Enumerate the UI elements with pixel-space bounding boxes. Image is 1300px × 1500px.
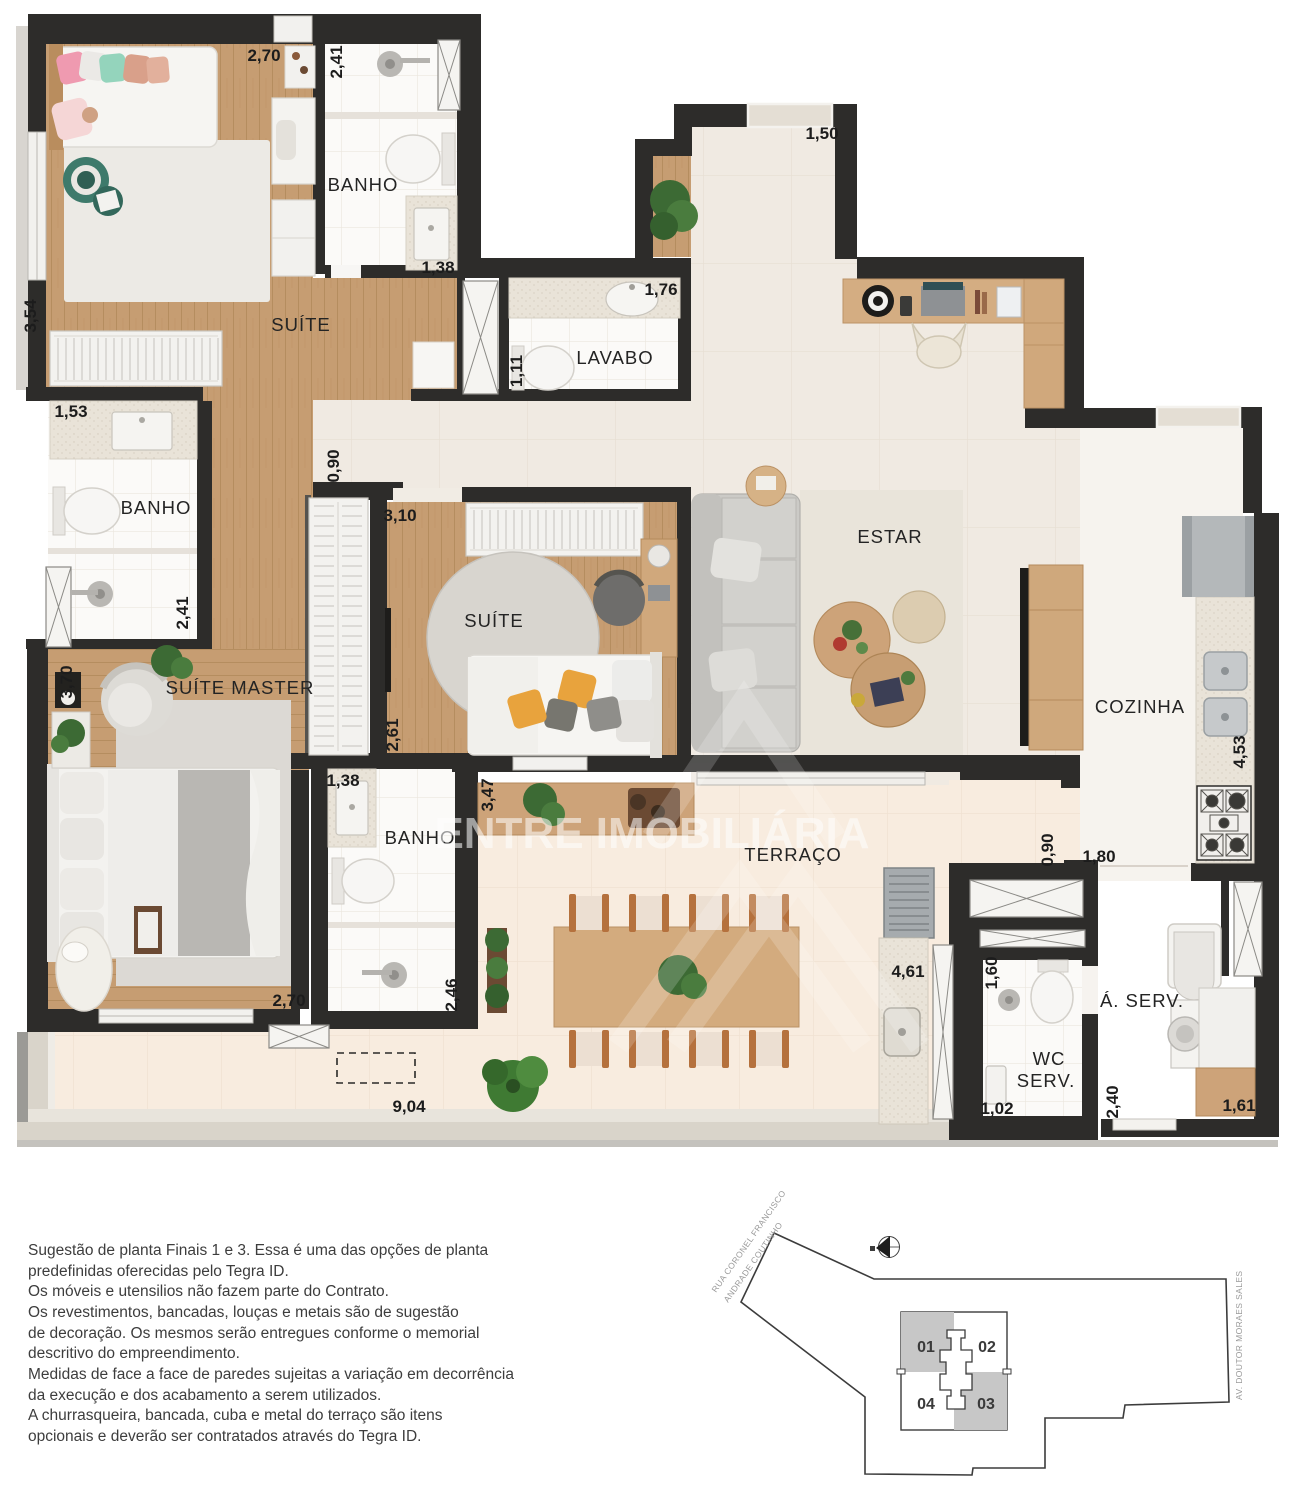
svg-text:ESTAR: ESTAR (857, 526, 922, 547)
svg-text:opcionais e deverão ser contra: opcionais e deverão ser contratados atra… (28, 1428, 421, 1445)
svg-text:2,70: 2,70 (272, 991, 305, 1010)
svg-text:LAVABO: LAVABO (576, 347, 653, 368)
svg-text:predefinidas oferecidas pelo T: predefinidas oferecidas pelo Tegra ID. (28, 1263, 289, 1280)
svg-text:3,70: 3,70 (57, 665, 76, 698)
svg-text:1,61: 1,61 (1222, 1096, 1255, 1115)
svg-text:4,53: 4,53 (1230, 735, 1249, 768)
svg-text:SERV.: SERV. (1017, 1070, 1076, 1091)
svg-text:SUÍTE: SUÍTE (271, 314, 330, 335)
svg-text:3,10: 3,10 (383, 506, 416, 525)
svg-text:02: 02 (978, 1339, 996, 1356)
svg-text:3,54: 3,54 (21, 299, 40, 333)
svg-text:3,47: 3,47 (478, 778, 497, 811)
svg-text:descritivo do empreendimento.: descritivo do empreendimento. (28, 1345, 240, 1362)
svg-text:0,90: 0,90 (324, 449, 343, 482)
svg-text:01: 01 (917, 1339, 935, 1356)
svg-text:1,50: 1,50 (805, 124, 838, 143)
svg-text:2,61: 2,61 (383, 718, 402, 751)
svg-text:1,38: 1,38 (421, 258, 454, 277)
svg-text:1,60: 1,60 (982, 956, 1001, 989)
svg-text:1,76: 1,76 (644, 280, 677, 299)
svg-text:Á. SERV.: Á. SERV. (1100, 990, 1184, 1011)
svg-text:Os revestimentos, bancadas, lo: Os revestimentos, bancadas, louças e met… (28, 1304, 459, 1321)
svg-text:WC: WC (1033, 1048, 1066, 1069)
svg-text:2,41: 2,41 (327, 45, 346, 78)
svg-text:1,80: 1,80 (1082, 847, 1115, 866)
svg-text:2,41: 2,41 (173, 596, 192, 629)
svg-text:2,70: 2,70 (247, 46, 280, 65)
svg-text:COZINHA: COZINHA (1095, 696, 1185, 717)
svg-text:Medidas de face a face de pare: Medidas de face a face de paredes sujeit… (28, 1366, 514, 1383)
svg-text:1,11: 1,11 (507, 355, 526, 387)
svg-text:2,40: 2,40 (1103, 1085, 1122, 1118)
svg-text:BANHO: BANHO (328, 174, 399, 195)
svg-text:da execução e dos acabamento a: da execução e dos acabamento a serem uti… (28, 1387, 381, 1404)
svg-text:ENTRE IMOBILIÁRIA: ENTRE IMOBILIÁRIA (434, 808, 869, 858)
svg-text:SUÍTE MASTER: SUÍTE MASTER (166, 677, 315, 698)
svg-text:1,38: 1,38 (326, 771, 359, 790)
svg-text:1,53: 1,53 (54, 402, 87, 421)
svg-text:AV. DOUTOR MORAES SALES: AV. DOUTOR MORAES SALES (1234, 1271, 1244, 1401)
svg-text:9,04: 9,04 (392, 1097, 426, 1116)
svg-text:A churrasqueira, bancada, cuba: A churrasqueira, bancada, cuba e metal d… (28, 1407, 443, 1424)
svg-text:4,61: 4,61 (891, 962, 924, 981)
svg-text:04: 04 (917, 1396, 935, 1413)
svg-text:2,46: 2,46 (442, 978, 461, 1011)
svg-text:03: 03 (977, 1396, 995, 1413)
svg-text:1,02: 1,02 (980, 1099, 1013, 1118)
svg-text:de decoração. Os mesmos serão: de decoração. Os mesmos serão entregues … (28, 1325, 479, 1342)
svg-text:0,90: 0,90 (1038, 833, 1057, 866)
svg-text:BANHO: BANHO (121, 497, 192, 518)
svg-text:Os móveis e utensilios não faz: Os móveis e utensilios não fazem parte d… (28, 1283, 389, 1300)
svg-text:Sugestão de planta Finais 1 e: Sugestão de planta Finais 1 e 3. Essa é … (28, 1242, 489, 1259)
svg-text:SUÍTE: SUÍTE (464, 610, 523, 631)
